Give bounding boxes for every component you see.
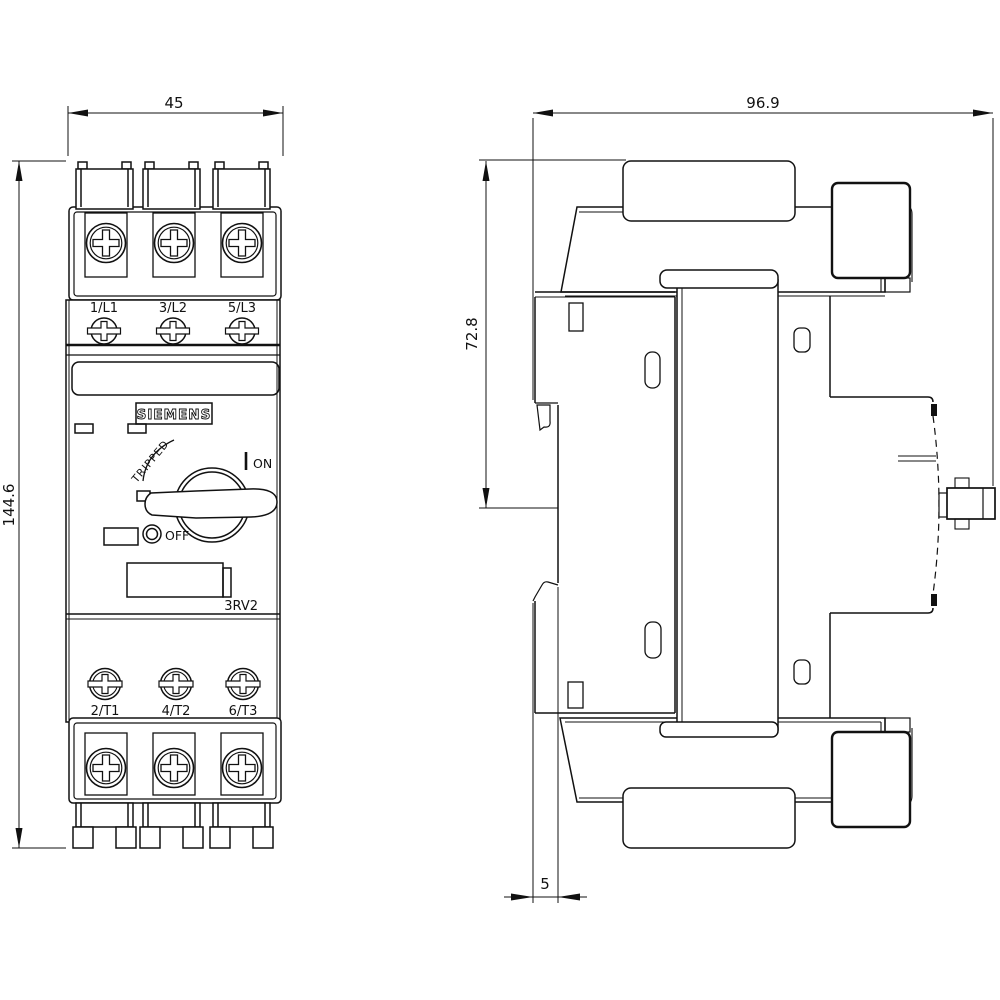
terminal-label-6T3: 6/T3 (229, 704, 258, 719)
top-cap (623, 161, 795, 221)
motor-starter-dimension-drawing: 1/L1 3/L2 5/L3 SIEMENS TRIPPED ON (0, 0, 1000, 1000)
terminal-label-3L2: 3/L2 (159, 301, 187, 316)
top-terminal-block (69, 162, 281, 300)
bottom-clamp-towers (73, 803, 273, 848)
terminal-screw (223, 224, 262, 263)
dim-width-value: 45 (164, 94, 183, 112)
terminal-label-4T2: 4/T2 (162, 704, 191, 719)
dimensional-drawing-page: { "drawing": { "brand": "SIEMENS", "prod… (0, 0, 1000, 1000)
knob-rotation-arc-hidden (933, 416, 939, 594)
right-profile (830, 296, 995, 718)
off-position-mark-inner (147, 529, 158, 540)
dim-depth-value: 96.9 (746, 94, 779, 112)
rating-nameplate (127, 563, 223, 597)
aux-screw (226, 669, 260, 700)
brand-logo: SIEMENS (137, 407, 212, 423)
on-label: ON (253, 456, 272, 471)
terminal-label-5L3: 5/L3 (228, 301, 256, 316)
din-rail-clip-profile (533, 292, 675, 713)
bottom-terminal-block (69, 718, 281, 848)
dim-upper-depth-value: 72.8 (463, 317, 481, 350)
terminal-screw (223, 749, 262, 788)
line-terminal-row: 1/L1 3/L2 5/L3 (88, 301, 259, 344)
terminal-screw (87, 224, 126, 263)
terminal-label-2T1: 2/T1 (91, 704, 120, 719)
top-clamp-towers (76, 162, 270, 209)
bottom-cap (623, 788, 795, 848)
dim-height-value: 144.6 (0, 484, 18, 527)
terminal-label-1L1: 1/L1 (90, 301, 118, 316)
dim-width: 45 (68, 94, 283, 156)
side-view (533, 161, 995, 848)
aux-screw (159, 669, 193, 700)
load-terminal-row: 2/T1 4/T2 6/T3 (88, 669, 260, 720)
front-escutcheon-column (660, 270, 778, 737)
terminal-screw (155, 749, 194, 788)
rear-top-block (832, 183, 912, 292)
dim-rail-clip-value: 5 (540, 875, 550, 893)
rear-bottom-block (832, 718, 912, 827)
product-code: 3RV2 (224, 599, 258, 614)
off-label: OFF (165, 528, 189, 543)
terminal-screw (87, 749, 126, 788)
terminal-screw (155, 224, 194, 263)
test-connector (939, 478, 995, 529)
aux-screw (88, 669, 122, 700)
rotary-handle (145, 489, 277, 518)
dim-height: 144.6 (0, 161, 66, 848)
front-view: 1/L1 3/L2 5/L3 SIEMENS TRIPPED ON (66, 162, 281, 848)
brand-plate: SIEMENS (136, 403, 212, 424)
